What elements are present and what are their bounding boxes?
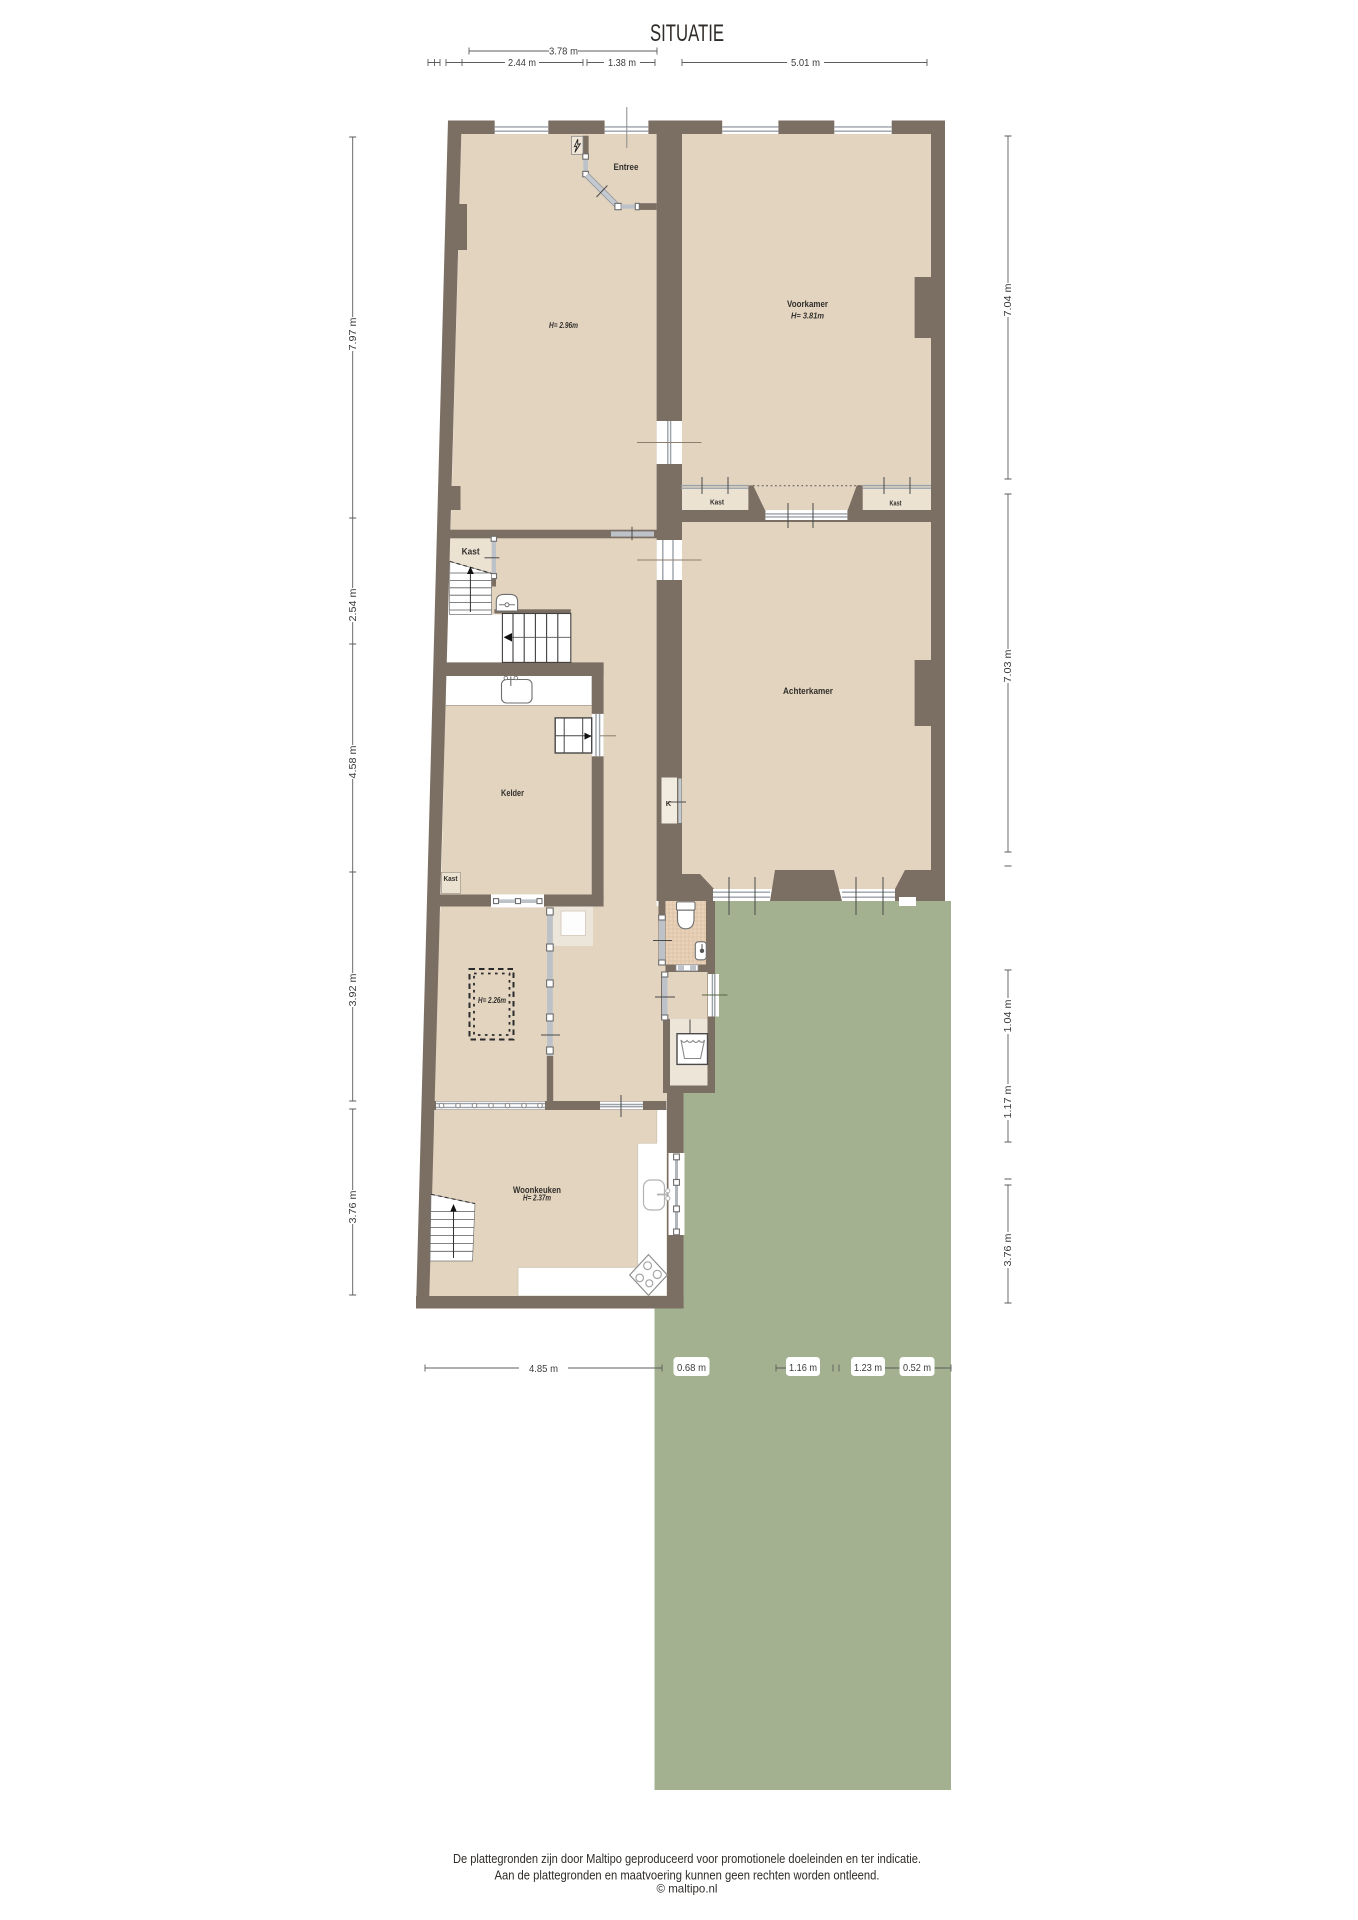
- svg-text:K: K: [666, 799, 672, 808]
- svg-text:1.16 m: 1.16 m: [789, 1362, 817, 1374]
- svg-text:Kast: Kast: [890, 499, 902, 508]
- svg-text:4.85 m: 4.85 m: [529, 1363, 558, 1375]
- svg-text:H= 2.37m: H= 2.37m: [523, 1193, 551, 1203]
- svg-text:4.58 m: 4.58 m: [347, 745, 359, 778]
- svg-text:Kast: Kast: [462, 547, 481, 558]
- svg-text:H= 2.96m: H= 2.96m: [549, 320, 578, 330]
- svg-text:1.38 m: 1.38 m: [608, 57, 636, 69]
- svg-text:5.01 m: 5.01 m: [791, 57, 820, 69]
- svg-text:2.54 m: 2.54 m: [347, 588, 359, 621]
- svg-text:3.76 m: 3.76 m: [347, 1190, 359, 1223]
- svg-text:1.23 m: 1.23 m: [854, 1362, 882, 1374]
- svg-text:0.68 m: 0.68 m: [677, 1362, 706, 1374]
- svg-text:© maltipo.nl: © maltipo.nl: [657, 1882, 718, 1896]
- svg-text:Kast: Kast: [710, 498, 724, 507]
- svg-text:7.03 m: 7.03 m: [1002, 649, 1014, 682]
- svg-text:7.04 m: 7.04 m: [1002, 283, 1014, 316]
- svg-text:7.97 m: 7.97 m: [347, 317, 359, 350]
- svg-text:Aan de plattegronden en maatvo: Aan de plattegronden en maatvoering kunn…: [495, 1869, 880, 1883]
- svg-text:Achterkamer: Achterkamer: [783, 686, 833, 697]
- svg-text:Kast: Kast: [444, 874, 458, 883]
- svg-text:1.04 m: 1.04 m: [1002, 999, 1014, 1032]
- svg-text:H= 2.26m: H= 2.26m: [478, 995, 506, 1005]
- svg-text:3.78 m: 3.78 m: [549, 46, 578, 58]
- svg-text:2.44 m: 2.44 m: [508, 57, 536, 69]
- svg-text:Voorkamer: Voorkamer: [787, 299, 828, 310]
- svg-text:Entree: Entree: [614, 162, 639, 173]
- svg-text:SITUATIE: SITUATIE: [650, 20, 724, 47]
- svg-text:3.76 m: 3.76 m: [1002, 1233, 1014, 1266]
- svg-text:H= 3.81m: H= 3.81m: [791, 311, 824, 321]
- svg-text:Kelder: Kelder: [501, 788, 524, 799]
- svg-text:De plattegronden zijn door Mal: De plattegronden zijn door Maltipo gepro…: [453, 1852, 921, 1866]
- svg-text:1.17 m: 1.17 m: [1002, 1085, 1014, 1118]
- svg-text:0.52 m: 0.52 m: [903, 1362, 931, 1374]
- svg-text:3.92 m: 3.92 m: [347, 973, 359, 1006]
